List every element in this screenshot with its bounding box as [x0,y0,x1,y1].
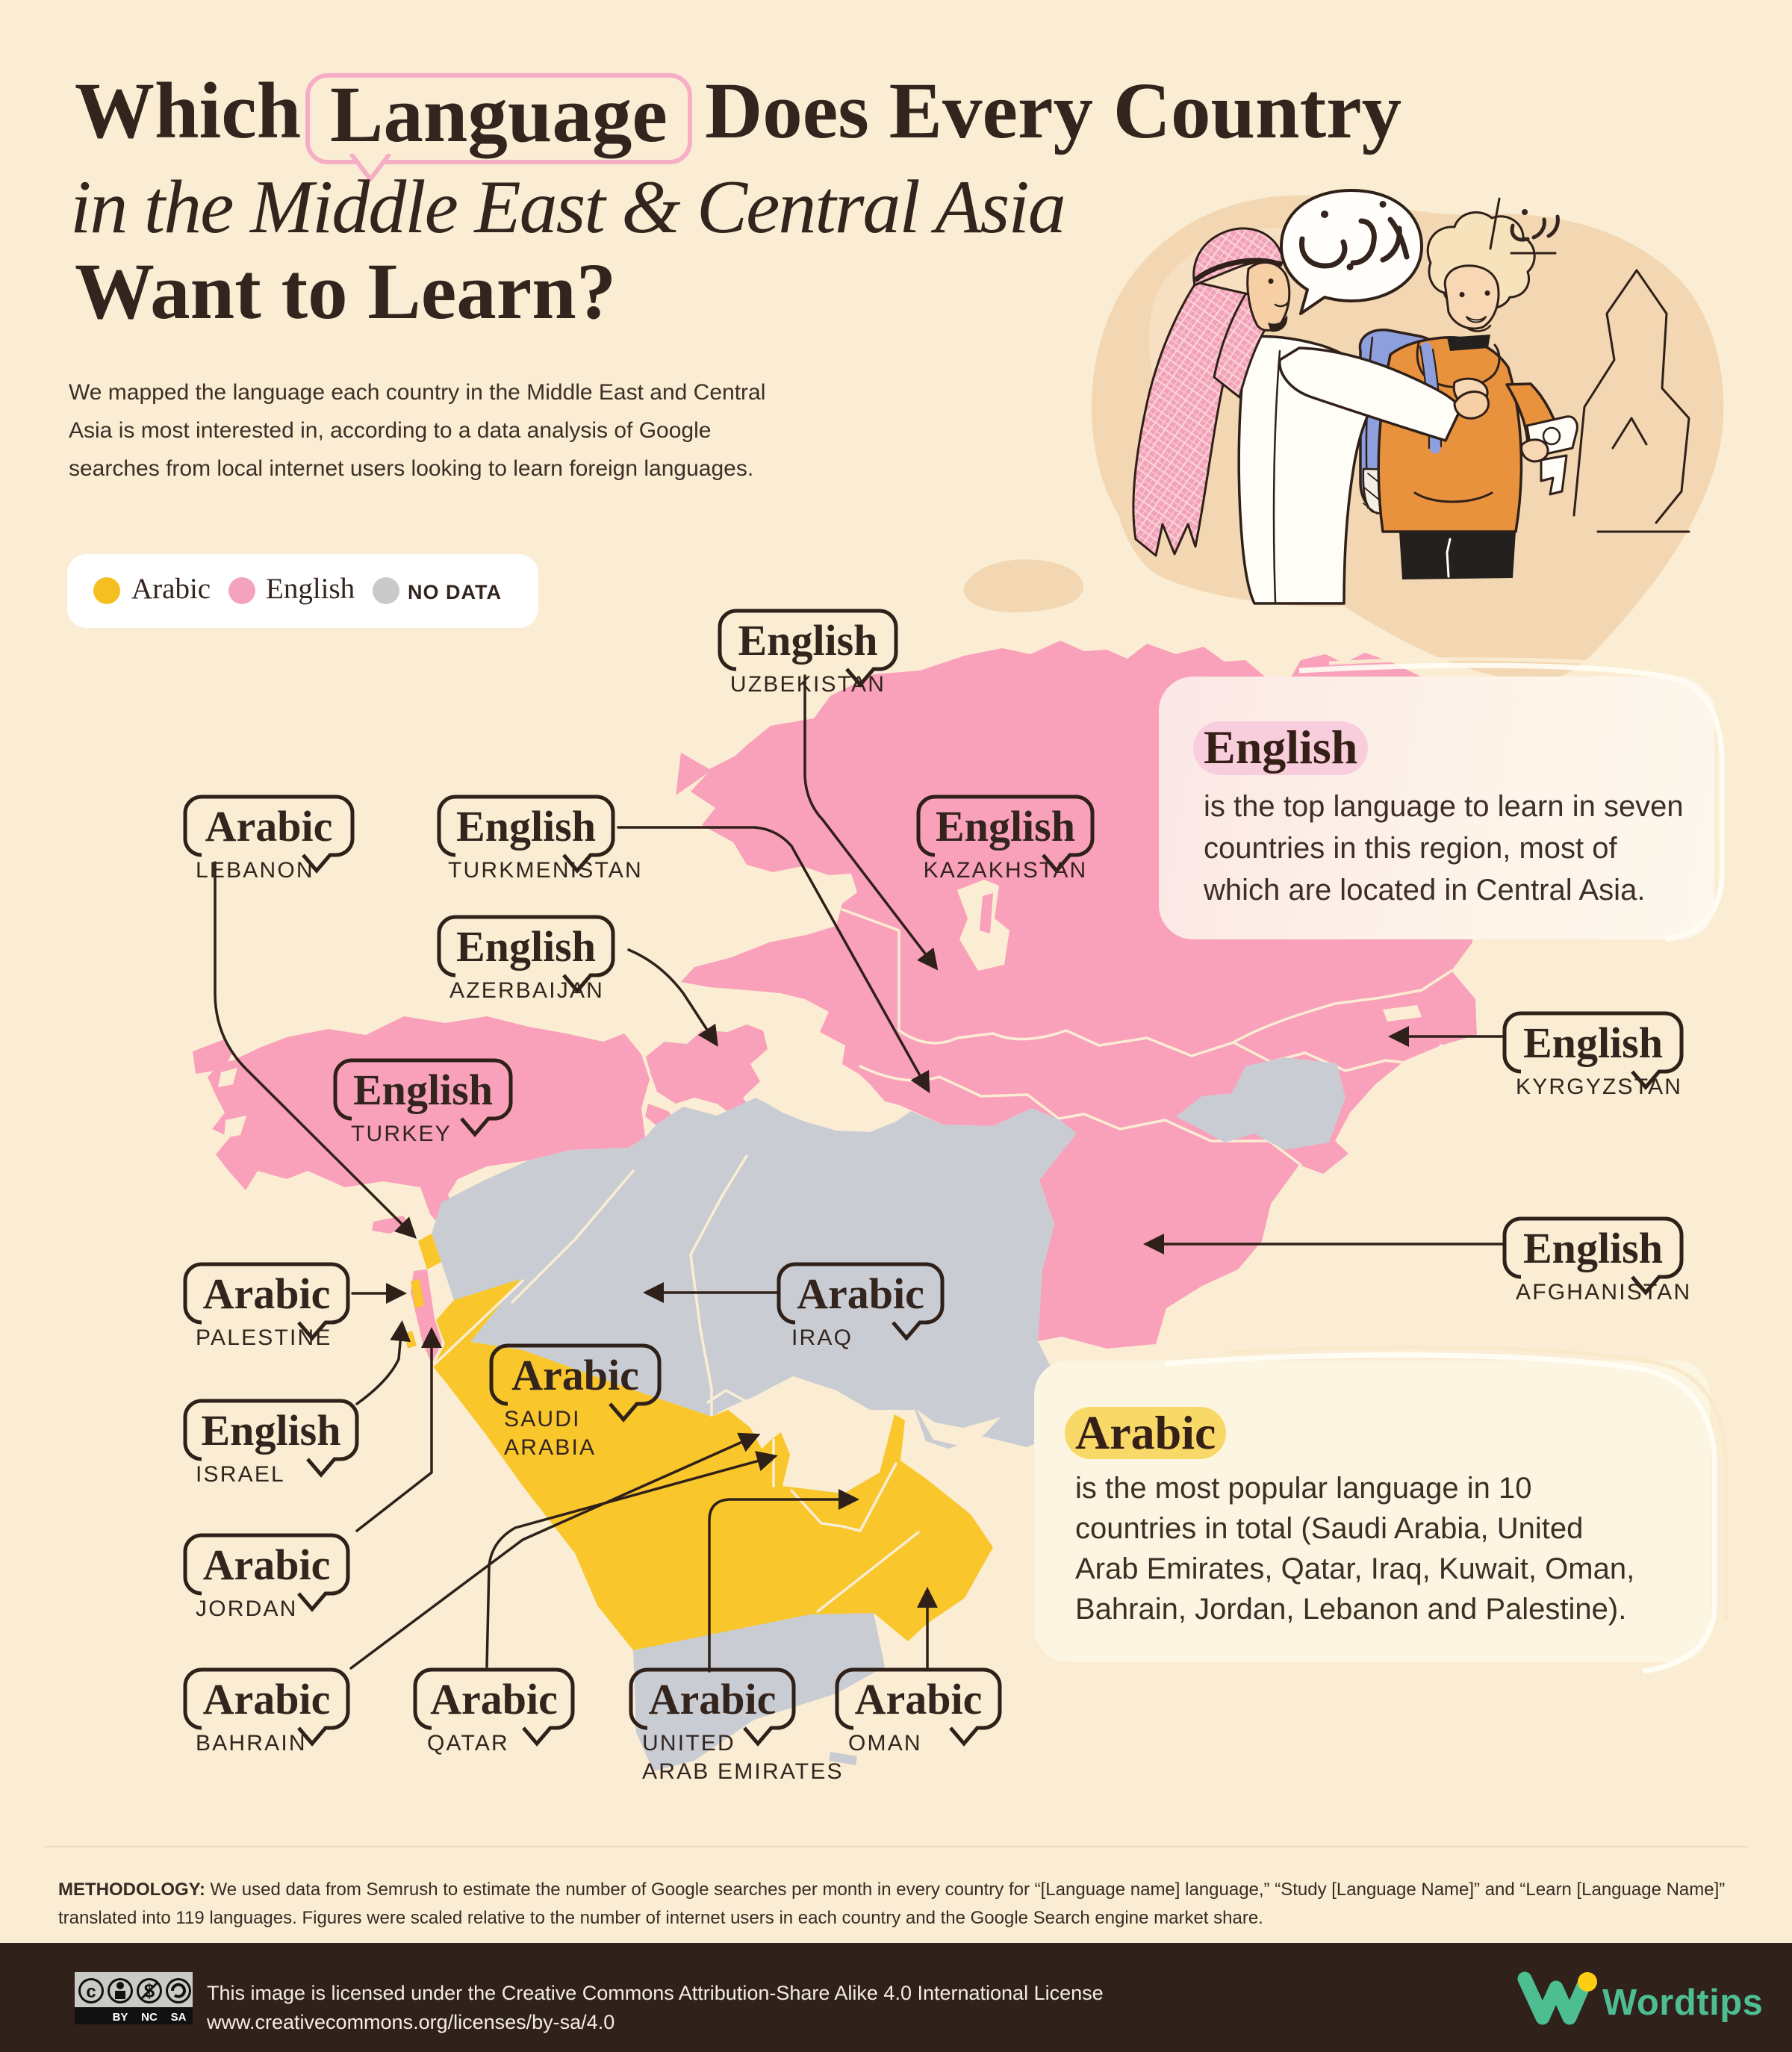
svg-text:AZERBAIJAN: AZERBAIJAN [449,978,604,1003]
svg-text:English: English [1523,1224,1663,1272]
svg-text:KYRGYZSTAN: KYRGYZSTAN [1516,1075,1682,1099]
svg-text:UNITED: UNITED [642,1731,735,1756]
svg-text:English: English [202,1406,341,1455]
svg-text:Arabic: Arabic [430,1675,558,1723]
svg-text:English: English [1523,1019,1663,1067]
svg-text:LEBANON: LEBANON [196,858,314,883]
svg-text:IRAQ: IRAQ [791,1325,853,1350]
svg-text:Arabic: Arabic [203,1540,331,1589]
svg-text:ARABIA: ARABIA [504,1435,596,1460]
svg-text:Arabic: Arabic [855,1675,983,1723]
svg-text:TURKMENISTAN: TURKMENISTAN [448,858,643,883]
svg-text:English: English [936,802,1075,851]
svg-text:Arabic: Arabic [797,1269,924,1318]
svg-text:JORDAN: JORDAN [196,1596,298,1621]
svg-text:Arabic: Arabic [205,802,333,851]
svg-text:BAHRAIN: BAHRAIN [196,1731,307,1756]
svg-text:BY: BY [113,2011,128,2024]
svg-text:Arabic: Arabic [511,1351,639,1399]
svg-text:PALESTINE: PALESTINE [196,1325,332,1350]
svg-text:Arabic: Arabic [649,1675,777,1723]
svg-text:Arabic: Arabic [203,1269,331,1318]
svg-text:ARAB EMIRATES: ARAB EMIRATES [642,1759,844,1784]
svg-text:Wordtips: Wordtips [1602,1983,1763,2023]
svg-text:English: English [738,616,878,665]
svg-text:c: c [86,1982,96,2002]
svg-text:KAZAKHSTAN: KAZAKHSTAN [924,858,1088,883]
svg-text:ISRAEL: ISRAEL [196,1462,285,1487]
svg-text:English: English [353,1066,493,1114]
svg-text:English: English [456,922,596,971]
svg-text:SAUDI: SAUDI [504,1407,581,1431]
svg-text:QATAR: QATAR [427,1731,509,1756]
svg-text:SA: SA [171,2011,187,2024]
svg-text:OMAN: OMAN [848,1731,922,1756]
svg-text:English: English [456,802,596,851]
svg-text:NC: NC [141,2011,158,2024]
svg-text:TURKEY: TURKEY [351,1122,452,1146]
svg-text:AFGHANISTAN: AFGHANISTAN [1516,1280,1691,1305]
svg-text:UZBEKISTAN: UZBEKISTAN [730,672,886,697]
svg-text:Arabic: Arabic [203,1675,331,1723]
